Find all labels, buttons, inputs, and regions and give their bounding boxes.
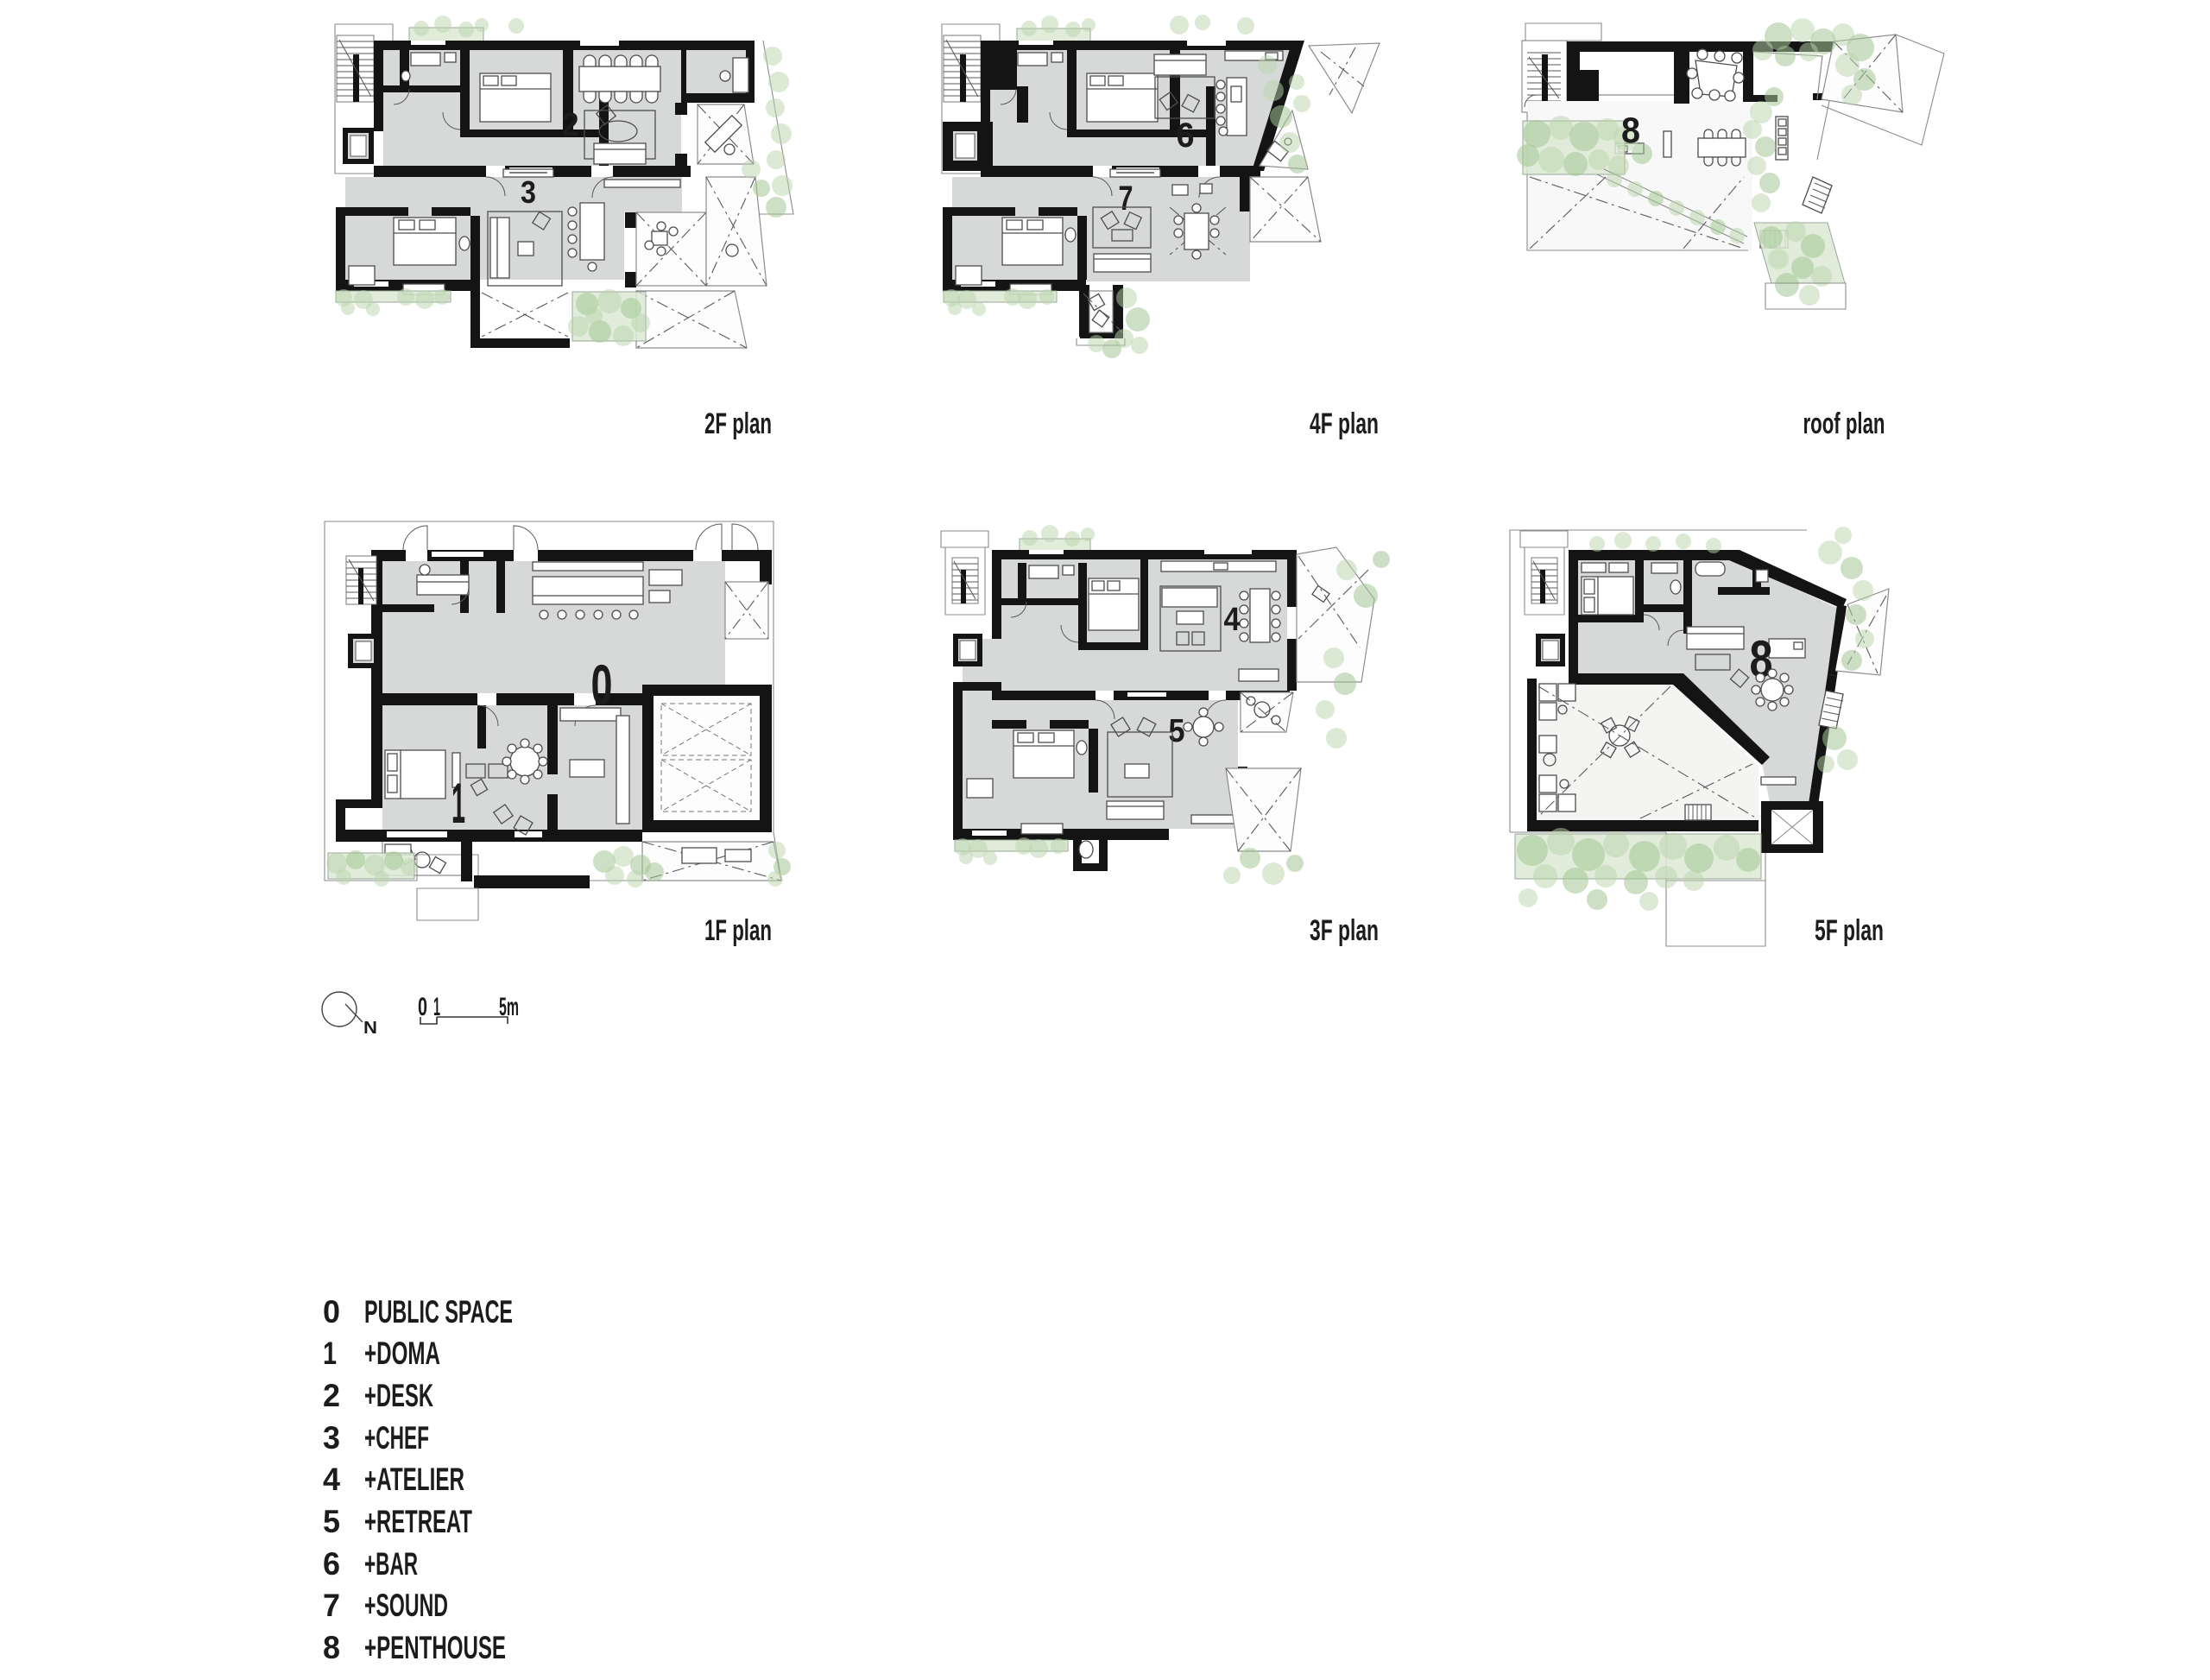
svg-text:+RETREAT: +RETREAT (364, 1504, 472, 1539)
svg-text:+DOMA: +DOMA (364, 1336, 440, 1371)
svg-text:+BAR: +BAR (364, 1546, 418, 1582)
svg-text:5: 5 (323, 1504, 340, 1539)
svg-text:5F plan: 5F plan (1815, 914, 1884, 947)
svg-text:5: 5 (1169, 713, 1185, 749)
svg-text:+SOUND: +SOUND (364, 1588, 448, 1623)
svg-text:3: 3 (521, 174, 536, 210)
svg-text:4: 4 (323, 1462, 340, 1497)
svg-text:2F plan: 2F plan (704, 407, 772, 440)
svg-text:PUBLIC SPACE: PUBLIC SPACE (364, 1294, 513, 1329)
svg-text:4: 4 (1224, 602, 1241, 638)
svg-text:8: 8 (323, 1630, 340, 1665)
svg-text:N: N (363, 1019, 377, 1038)
svg-text:4F plan: 4F plan (1310, 407, 1379, 440)
svg-text:2: 2 (323, 1378, 340, 1413)
svg-text:+PENTHOUSE: +PENTHOUSE (364, 1630, 506, 1665)
svg-text:8: 8 (1621, 110, 1640, 150)
svg-text:+CHEF: +CHEF (364, 1420, 429, 1456)
svg-text:0: 0 (591, 653, 613, 717)
svg-text:+DESK: +DESK (364, 1378, 433, 1413)
svg-text:7: 7 (323, 1588, 340, 1623)
svg-text:2: 2 (563, 107, 579, 143)
svg-text:3F plan: 3F plan (1310, 914, 1379, 947)
svg-text:roof plan: roof plan (1803, 407, 1885, 440)
svg-text:6: 6 (323, 1546, 340, 1582)
svg-text:6: 6 (1177, 117, 1195, 155)
svg-text:1: 1 (451, 771, 465, 835)
svg-text:1: 1 (323, 1336, 337, 1371)
svg-text:0: 0 (323, 1294, 340, 1329)
svg-text:0: 0 (418, 993, 427, 1021)
svg-text:7: 7 (1119, 180, 1133, 218)
svg-text:1F plan: 1F plan (704, 914, 772, 947)
svg-text:3: 3 (323, 1420, 340, 1456)
svg-text:+ATELIER: +ATELIER (364, 1462, 464, 1497)
